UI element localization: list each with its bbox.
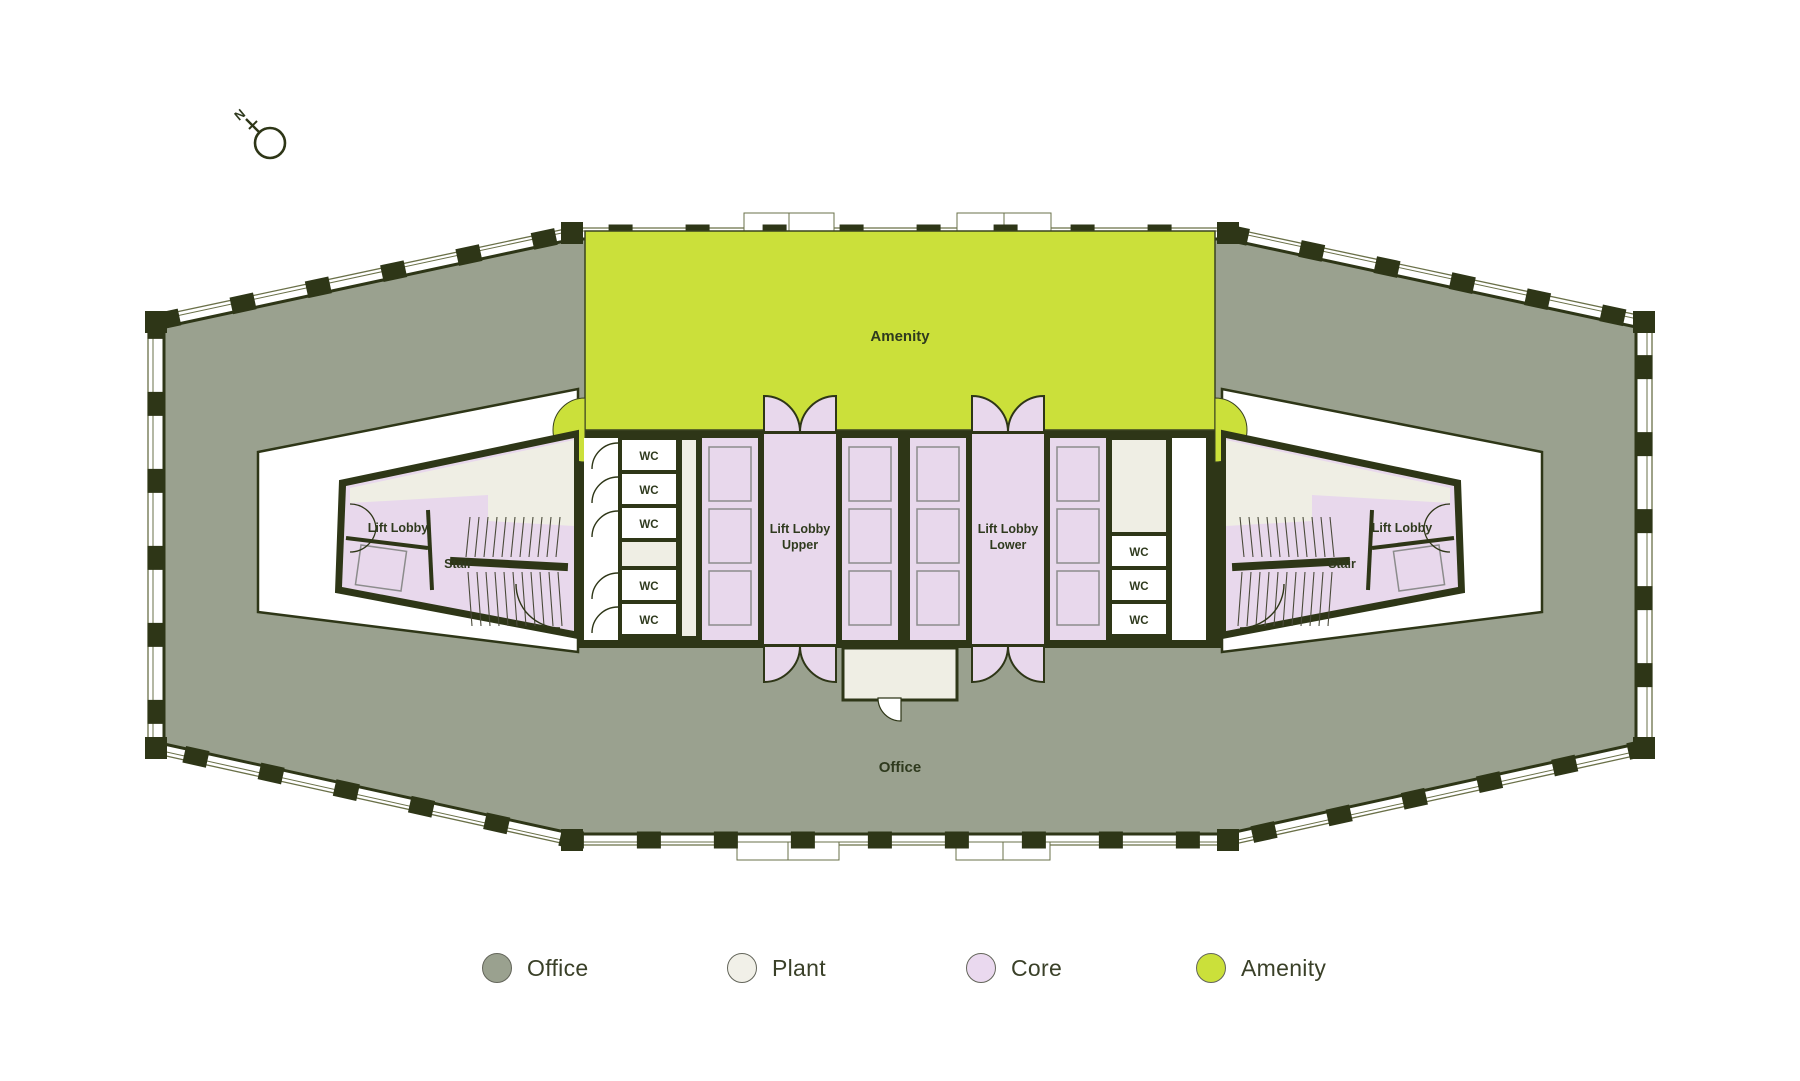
core-plant-right-upper (1112, 440, 1166, 532)
plant-room-south (843, 648, 957, 700)
facade-corner-column-7 (145, 737, 167, 759)
north-compass: N (231, 106, 285, 158)
facade-corner-column-6 (561, 829, 583, 851)
wc-label-left-3: WC (639, 581, 658, 593)
lift-lobby-left-label: Lift Lobby (368, 521, 428, 535)
lift-bank-d-car-1 (1057, 509, 1099, 563)
core-corridor-left (584, 438, 618, 640)
wc-label-left-0: WC (639, 451, 658, 463)
facade-corner-column-0 (145, 311, 167, 333)
core-plant-strip-left (622, 542, 676, 566)
compass-circle (255, 128, 285, 158)
lift-lobby-upper-label-line1: Lift Lobby (770, 522, 830, 536)
wc-label-left-2: WC (639, 519, 658, 531)
lift-lobby-upper-label-line2: Upper (782, 538, 818, 552)
facade-corner-column-2 (1217, 222, 1239, 244)
lift-bank-d-car-2 (1057, 571, 1099, 625)
wc-label-right-2: WC (1129, 615, 1148, 627)
core-corridor-right (1172, 438, 1206, 640)
stair-left-label: Stair (444, 557, 472, 571)
lift-bank-c-car-0 (917, 447, 959, 501)
lift-bank-c-car-1 (917, 509, 959, 563)
facade-corner-column-4 (1633, 737, 1655, 759)
wc-label-right-0: WC (1129, 547, 1148, 559)
floor-plan-drawing: AmenityOfficeWCWCWCWCWCWCWCWCLift LobbyU… (0, 0, 1800, 1081)
lift-lobby-lower-label-line2: Lower (990, 538, 1027, 552)
facade-corner-column-5 (1217, 829, 1239, 851)
lift-bank-c-car-2 (917, 571, 959, 625)
core-plant-sliver-left (682, 440, 696, 636)
lift-lobby-right-label: Lift Lobby (1372, 521, 1432, 535)
lift-lobby-lower-label-line1: Lift Lobby (978, 522, 1038, 536)
wc-label-left-4: WC (639, 615, 658, 627)
compass-north-label: N (231, 106, 248, 124)
wc-label-left-1: WC (639, 485, 658, 497)
office-label: Office (879, 759, 922, 776)
lift-bank-b-car-1 (849, 509, 891, 563)
facade-corner-column-3 (1633, 311, 1655, 333)
lift-bank-a-car-1 (709, 509, 751, 563)
amenity-label: Amenity (870, 328, 930, 345)
floor-plan-page: AmenityOfficeWCWCWCWCWCWCWCWCLift LobbyU… (0, 0, 1800, 1081)
stair-right-label: Stair (1328, 557, 1356, 571)
lift-bank-d-car-0 (1057, 447, 1099, 501)
lift-bank-a-car-2 (709, 571, 751, 625)
facade-corner-column-1 (561, 222, 583, 244)
wc-label-right-1: WC (1129, 581, 1148, 593)
lift-bank-b-car-2 (849, 571, 891, 625)
lift-bank-a-car-0 (709, 447, 751, 501)
lift-bank-b-car-0 (849, 447, 891, 501)
